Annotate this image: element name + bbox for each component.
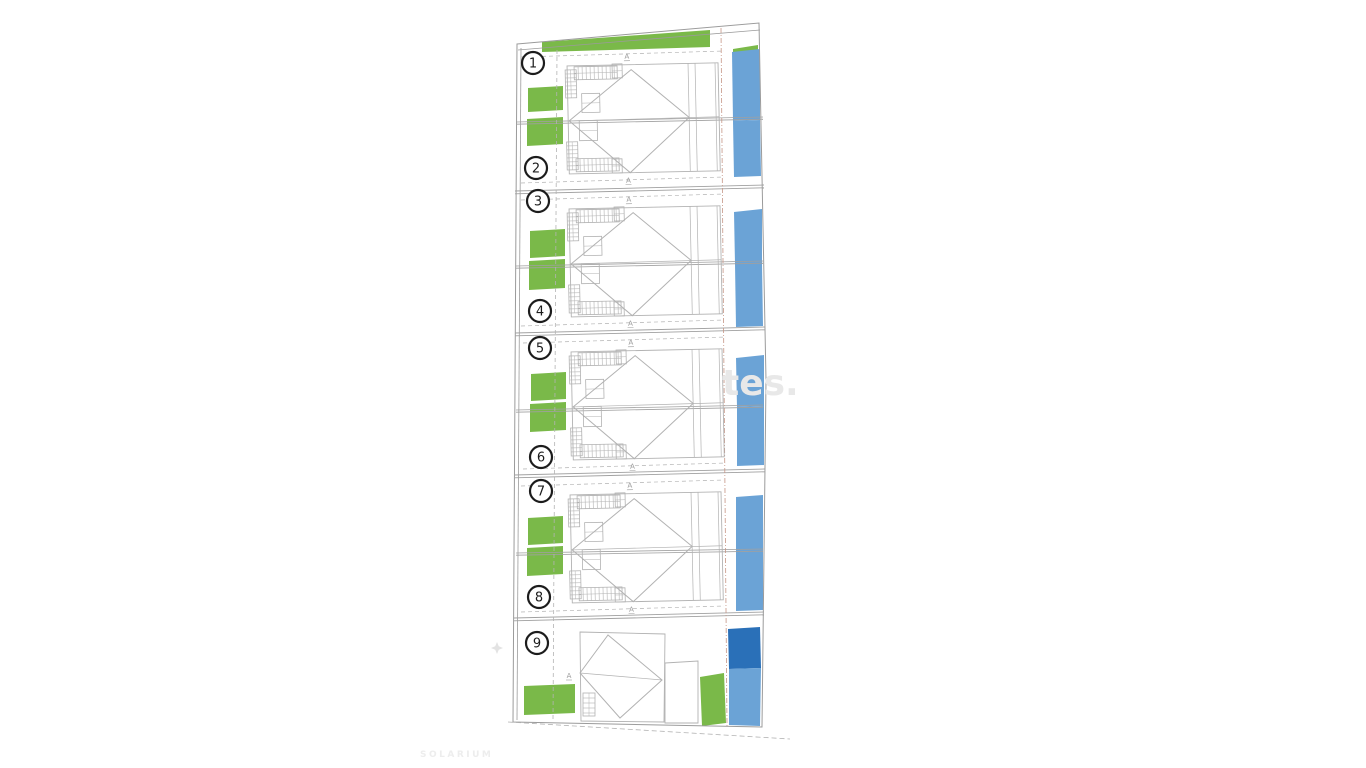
watermark-text: SOLARIUM bbox=[420, 750, 493, 760]
garden-area bbox=[527, 546, 563, 576]
plot-number-4: 4 bbox=[529, 300, 551, 322]
setback-dash-line bbox=[521, 606, 724, 612]
garden-area bbox=[529, 259, 565, 290]
plot-number-label: 4 bbox=[536, 305, 544, 320]
section-marker-a: A bbox=[626, 196, 631, 204]
swimming-pool bbox=[733, 120, 761, 177]
swimming-pool bbox=[737, 406, 764, 466]
plot-divider-line bbox=[514, 472, 765, 478]
hatch-line bbox=[578, 307, 621, 308]
plot-divider-line bbox=[515, 327, 765, 333]
swimming-pool bbox=[728, 627, 761, 669]
plot-number-label: 5 bbox=[536, 342, 544, 357]
plot-number-label: 2 bbox=[532, 162, 540, 177]
compass-icon bbox=[491, 642, 503, 654]
plot-number-3: 3 bbox=[527, 190, 549, 212]
section-marker-a: A bbox=[567, 672, 572, 680]
section-marker-a: A bbox=[624, 53, 629, 61]
plot-number-label: 8 bbox=[535, 591, 543, 606]
section-marker-a: A bbox=[629, 606, 634, 614]
site-plan-page: AAAAAAAAA123456789tes.SOLARIUM bbox=[0, 0, 1366, 768]
garden-area bbox=[528, 516, 563, 545]
building-footprint bbox=[580, 632, 665, 722]
section-marker-a: A bbox=[628, 339, 633, 347]
site-boundary-inner bbox=[517, 48, 521, 720]
plot-number-8: 8 bbox=[528, 586, 550, 608]
plot-number-label: 6 bbox=[537, 451, 545, 466]
duplex-building: AA bbox=[567, 194, 723, 329]
roof-ridge-line bbox=[580, 673, 662, 680]
setback-dash-line bbox=[521, 177, 724, 183]
plot-divider-line bbox=[514, 469, 765, 475]
plot-number-5: 5 bbox=[529, 337, 551, 359]
plot-number-label: 3 bbox=[534, 195, 542, 210]
hatch-line bbox=[577, 501, 620, 502]
plot-divider-line bbox=[515, 188, 764, 194]
plot-number-6: 6 bbox=[530, 446, 552, 468]
section-marker-a: A bbox=[628, 320, 633, 328]
swimming-pool bbox=[734, 209, 762, 264]
site-plan-svg: AAAAAAAAA123456789tes.SOLARIUM bbox=[0, 0, 1366, 768]
hatch-line bbox=[576, 215, 619, 216]
plot-number-label: 7 bbox=[537, 485, 545, 500]
plot-divider-line bbox=[515, 330, 765, 336]
detached-house: A bbox=[566, 632, 698, 723]
swimming-pool bbox=[732, 49, 760, 121]
hatch-line bbox=[576, 164, 619, 165]
roof-outline bbox=[572, 354, 694, 459]
hatch-line bbox=[578, 358, 621, 359]
setback-dash-line bbox=[523, 337, 726, 343]
hatch-line bbox=[580, 450, 623, 451]
hatch-line bbox=[574, 72, 617, 73]
plot-divider-line bbox=[515, 185, 764, 191]
plot-divider-line bbox=[514, 612, 764, 618]
garage-outline bbox=[665, 661, 698, 723]
setback-dash-line bbox=[521, 51, 724, 57]
garden-area bbox=[530, 402, 566, 432]
swimming-pool bbox=[736, 495, 763, 552]
swimming-pool bbox=[729, 668, 761, 726]
plot-number-1: 1 bbox=[522, 52, 544, 74]
swimming-pool bbox=[736, 551, 763, 611]
section-marker-a: A bbox=[626, 177, 631, 185]
plot-number-9: 9 bbox=[526, 632, 548, 654]
duplex-building: AA bbox=[569, 337, 725, 472]
duplex-building: AA bbox=[568, 480, 724, 615]
setback-dash-line bbox=[521, 194, 724, 200]
garden-area bbox=[530, 229, 565, 258]
hatch-line bbox=[579, 593, 622, 594]
garden-area bbox=[700, 673, 726, 726]
setback-dash-line bbox=[523, 463, 726, 469]
plot-number-label: 9 bbox=[533, 637, 541, 652]
plot-number-7: 7 bbox=[530, 480, 552, 502]
section-marker-a: A bbox=[627, 482, 632, 490]
plot-number-label: 1 bbox=[529, 57, 537, 72]
swimming-pool bbox=[735, 263, 763, 327]
watermark-text: tes. bbox=[722, 363, 799, 404]
garden-area bbox=[528, 86, 563, 112]
plot-number-2: 2 bbox=[525, 157, 547, 179]
garden-area bbox=[531, 372, 566, 401]
setback-dash-line bbox=[521, 320, 724, 326]
garden-area bbox=[524, 684, 575, 715]
plot-divider-line bbox=[514, 615, 764, 621]
section-marker-a: A bbox=[630, 463, 635, 471]
